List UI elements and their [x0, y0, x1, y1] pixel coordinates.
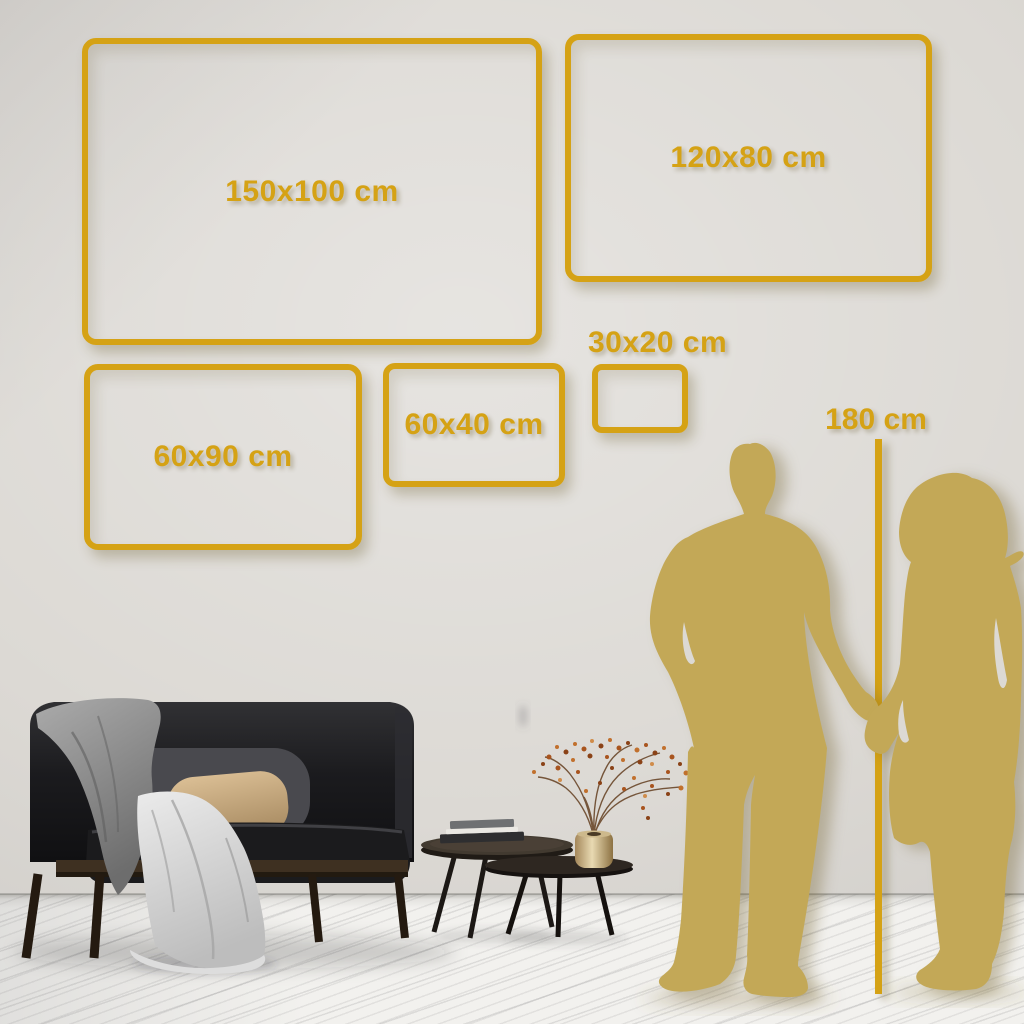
couple-silhouettes: [0, 0, 1024, 1024]
size-comparison-poster: 150x100 cm 120x80 cm 60x90 cm 60x40 cm 3…: [0, 0, 1024, 1024]
man-silhouette: [650, 443, 879, 997]
woman-silhouette: [865, 473, 1024, 991]
